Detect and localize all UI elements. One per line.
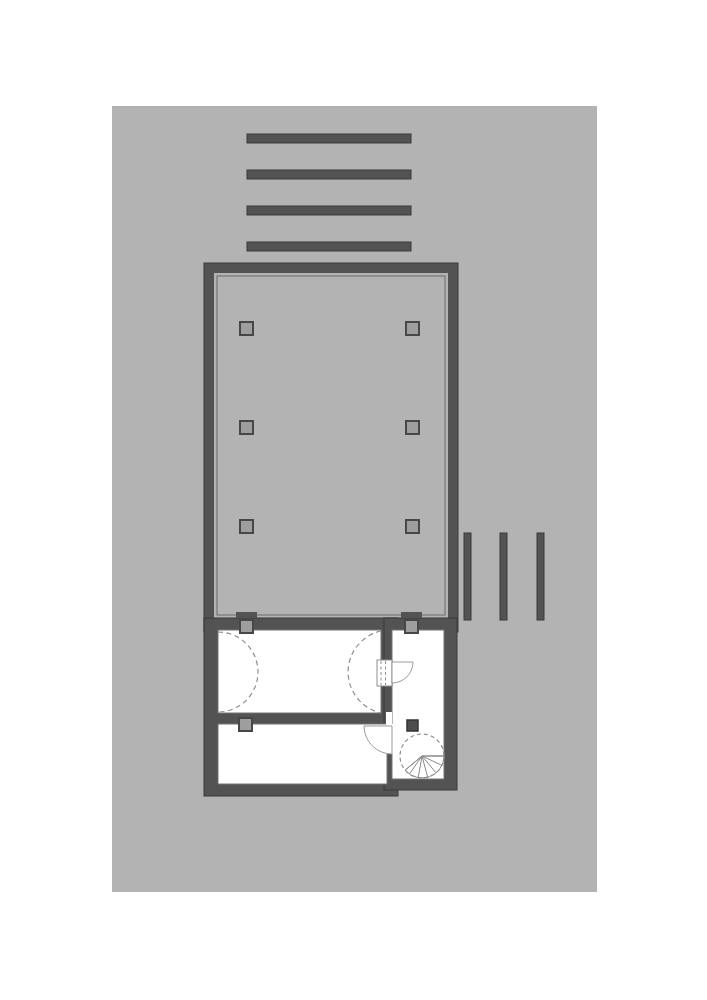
wall-opening-middle — [386, 712, 392, 725]
room-lower-left — [218, 724, 387, 784]
wall-column-1 — [240, 620, 253, 633]
pergola-bar-h-3 — [247, 206, 411, 215]
deck-bar-v-1 — [464, 533, 471, 620]
hall-column-2 — [406, 322, 419, 335]
floor-plan-page — [0, 0, 707, 1000]
stair-room-column — [407, 720, 418, 731]
wall-column-3 — [239, 718, 252, 731]
floor-plan-canvas — [0, 0, 707, 1000]
pergola-bar-h-2 — [247, 170, 411, 179]
deck-bar-v-2 — [500, 533, 507, 620]
door-1-pocket — [377, 660, 392, 686]
room-upper-left — [218, 630, 381, 713]
pergola-bar-h-4 — [247, 242, 411, 251]
hall-column-5 — [240, 520, 253, 533]
wall-column-tab-2 — [401, 612, 422, 618]
hall-column-4 — [406, 421, 419, 434]
hall-column-3 — [240, 421, 253, 434]
wall-column-2 — [405, 620, 418, 633]
hall-column-6 — [406, 520, 419, 533]
wall-column-tab-1 — [236, 612, 257, 618]
pergola-bar-h-1 — [247, 134, 411, 143]
deck-bar-v-3 — [537, 533, 544, 620]
hall-column-1 — [240, 322, 253, 335]
